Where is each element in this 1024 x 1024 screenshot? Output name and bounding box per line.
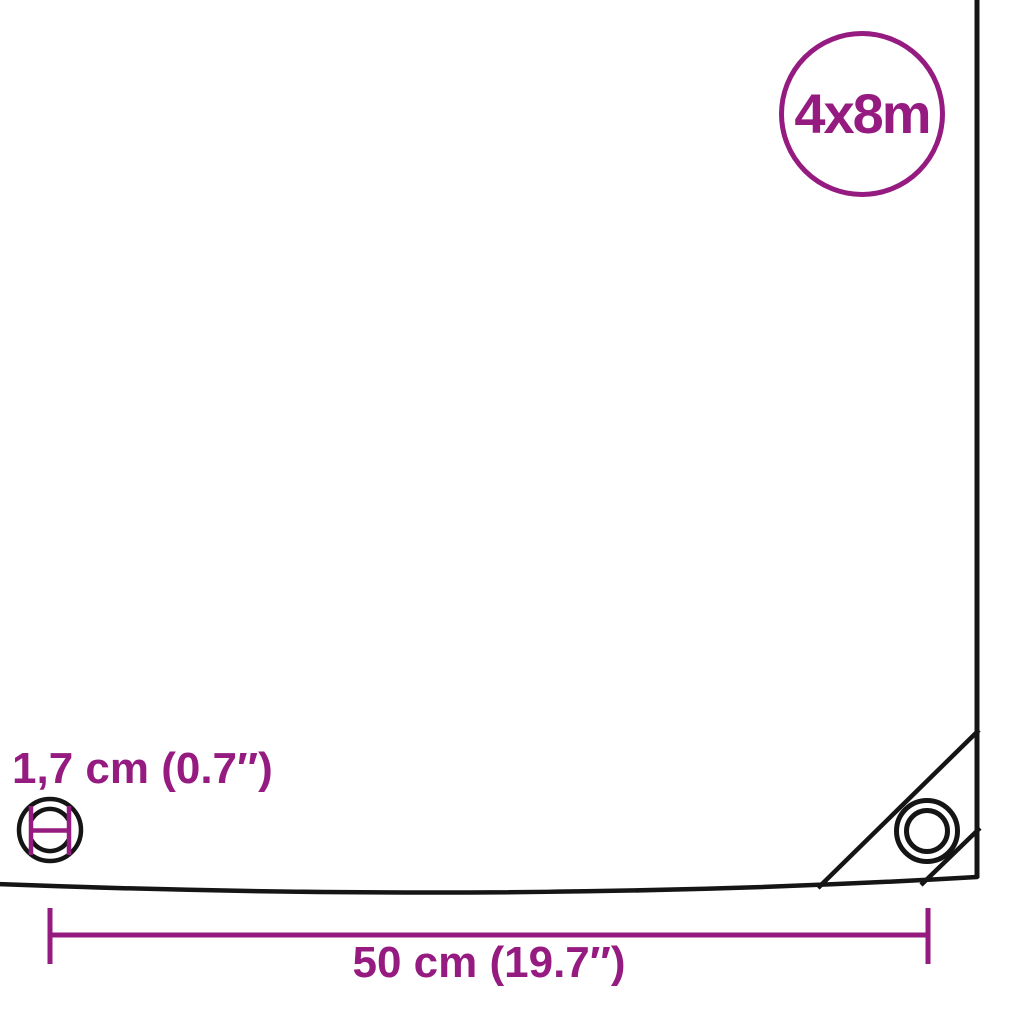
- corner-eyelet-inner-ring: [907, 811, 948, 852]
- corner-fold-line: [818, 730, 979, 888]
- tarpaulin-dimension-diagram: 4x8m 1,7 cm (0.7″) 50 cm (19.7″): [0, 0, 1024, 1024]
- size-badge: 4x8m: [779, 31, 945, 197]
- eyelet-inner-ring-bottom-arc: [32, 840, 69, 851]
- corner-eyelet-icon: [897, 801, 958, 862]
- eyelet-thickness-icon: [19, 799, 81, 861]
- size-badge-label: 4x8m: [794, 86, 929, 142]
- eyelet-diameter-label: 1,7 cm (0.7″): [12, 747, 273, 791]
- eyelet-inner-ring-top-arc: [32, 809, 69, 820]
- tarp-bottom-edge: [0, 877, 977, 893]
- eyelet-spacing-label: 50 cm (19.7″): [50, 941, 928, 985]
